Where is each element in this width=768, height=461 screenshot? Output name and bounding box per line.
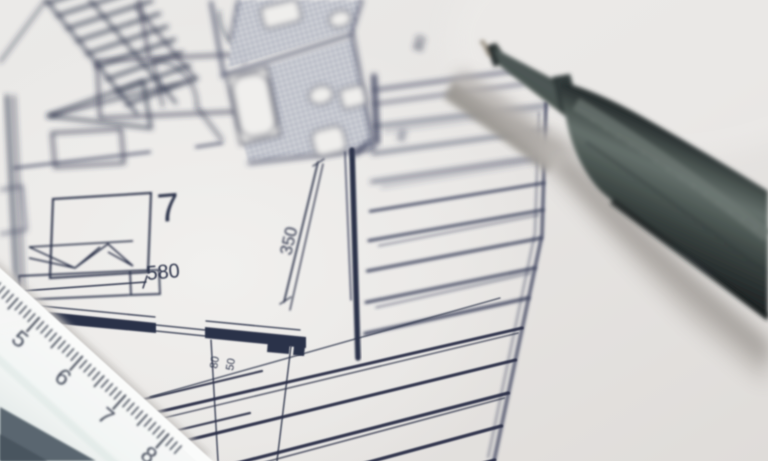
svg-text:50: 50 bbox=[224, 357, 238, 371]
svg-text:580: 580 bbox=[146, 260, 181, 285]
svg-text:80: 80 bbox=[208, 355, 222, 369]
svg-text:7: 7 bbox=[155, 185, 181, 231]
